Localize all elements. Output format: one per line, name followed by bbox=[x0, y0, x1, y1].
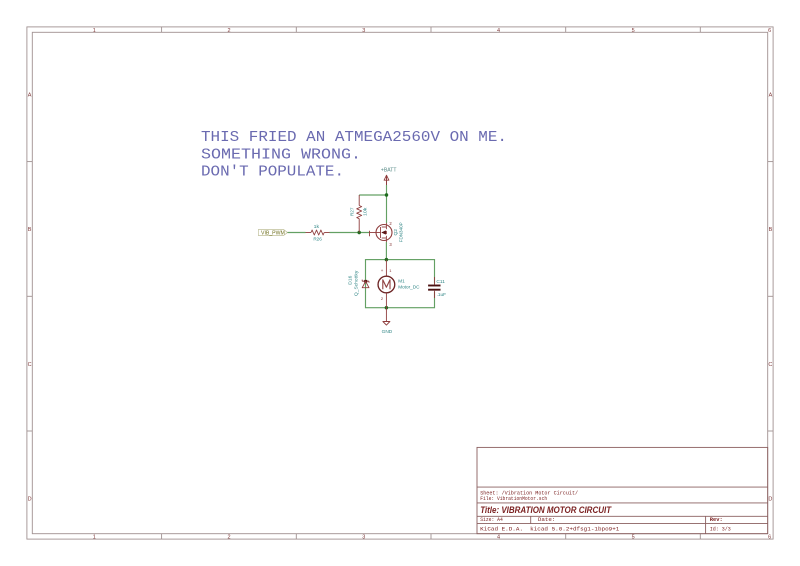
svg-text:D16: D16 bbox=[348, 275, 353, 284]
svg-text:Id: 3/3: Id: 3/3 bbox=[710, 525, 731, 532]
svg-text:C: C bbox=[28, 362, 32, 368]
svg-text:Size: A4: Size: A4 bbox=[480, 516, 503, 523]
svg-text:1k: 1k bbox=[314, 224, 320, 229]
svg-text:C: C bbox=[768, 362, 772, 368]
svg-text:B: B bbox=[28, 227, 32, 233]
svg-text:D: D bbox=[28, 497, 32, 503]
svg-text:4: 4 bbox=[497, 535, 500, 541]
svg-text:1: 1 bbox=[93, 28, 96, 34]
svg-text:1: 1 bbox=[93, 535, 96, 541]
svg-text:SOMETHING WRONG.: SOMETHING WRONG. bbox=[201, 147, 361, 163]
svg-text:Rev:: Rev: bbox=[710, 516, 723, 523]
svg-text:A: A bbox=[769, 92, 773, 98]
svg-text:10k: 10k bbox=[363, 207, 368, 216]
svg-text:Motor_DC: Motor_DC bbox=[398, 284, 420, 290]
svg-text:M1: M1 bbox=[398, 279, 405, 285]
svg-text:5: 5 bbox=[632, 535, 635, 541]
svg-text:Title: VIBRATION MOTOR CIRCUIT: Title: VIBRATION MOTOR CIRCUIT bbox=[480, 505, 611, 515]
svg-text:4: 4 bbox=[497, 28, 500, 34]
svg-text:THIS FRIED AN ATMEGA2560V ON M: THIS FRIED AN ATMEGA2560V ON ME. bbox=[201, 130, 507, 146]
svg-text:A: A bbox=[28, 92, 32, 98]
svg-text:3: 3 bbox=[362, 535, 365, 541]
svg-text:D: D bbox=[768, 497, 772, 503]
svg-text:R26: R26 bbox=[313, 237, 322, 242]
svg-text:Q2: Q2 bbox=[393, 229, 398, 236]
svg-text:5: 5 bbox=[632, 28, 635, 34]
svg-text:DON'T POPULATE.: DON'T POPULATE. bbox=[201, 165, 344, 181]
svg-text:VIB_PWM: VIB_PWM bbox=[261, 230, 285, 236]
svg-text:2: 2 bbox=[227, 535, 230, 541]
svg-text:Date:: Date: bbox=[538, 516, 556, 523]
svg-text:3: 3 bbox=[362, 28, 365, 34]
svg-text:2: 2 bbox=[227, 28, 230, 34]
svg-text:File: VibrationMotor.sch: File: VibrationMotor.sch bbox=[480, 495, 547, 502]
svg-text:+: + bbox=[381, 268, 384, 273]
svg-text:Q_Schottky: Q_Schottky bbox=[354, 270, 359, 296]
svg-text:.1uF: .1uF bbox=[437, 292, 447, 297]
svg-text:KiCad E.D.A. kicad 5.0.2+dfsg: KiCad E.D.A. kicad 5.0.2+dfsg1-1bpo9+1 bbox=[480, 525, 620, 532]
svg-text:6: 6 bbox=[768, 28, 771, 34]
svg-text:FDN340P: FDN340P bbox=[398, 222, 403, 242]
svg-text:C11: C11 bbox=[436, 279, 445, 284]
svg-text:GND: GND bbox=[382, 329, 393, 335]
svg-text:6: 6 bbox=[768, 535, 771, 541]
svg-text:+BATT: +BATT bbox=[381, 167, 397, 173]
svg-text:B: B bbox=[769, 227, 773, 233]
svg-text:R27: R27 bbox=[349, 207, 354, 216]
